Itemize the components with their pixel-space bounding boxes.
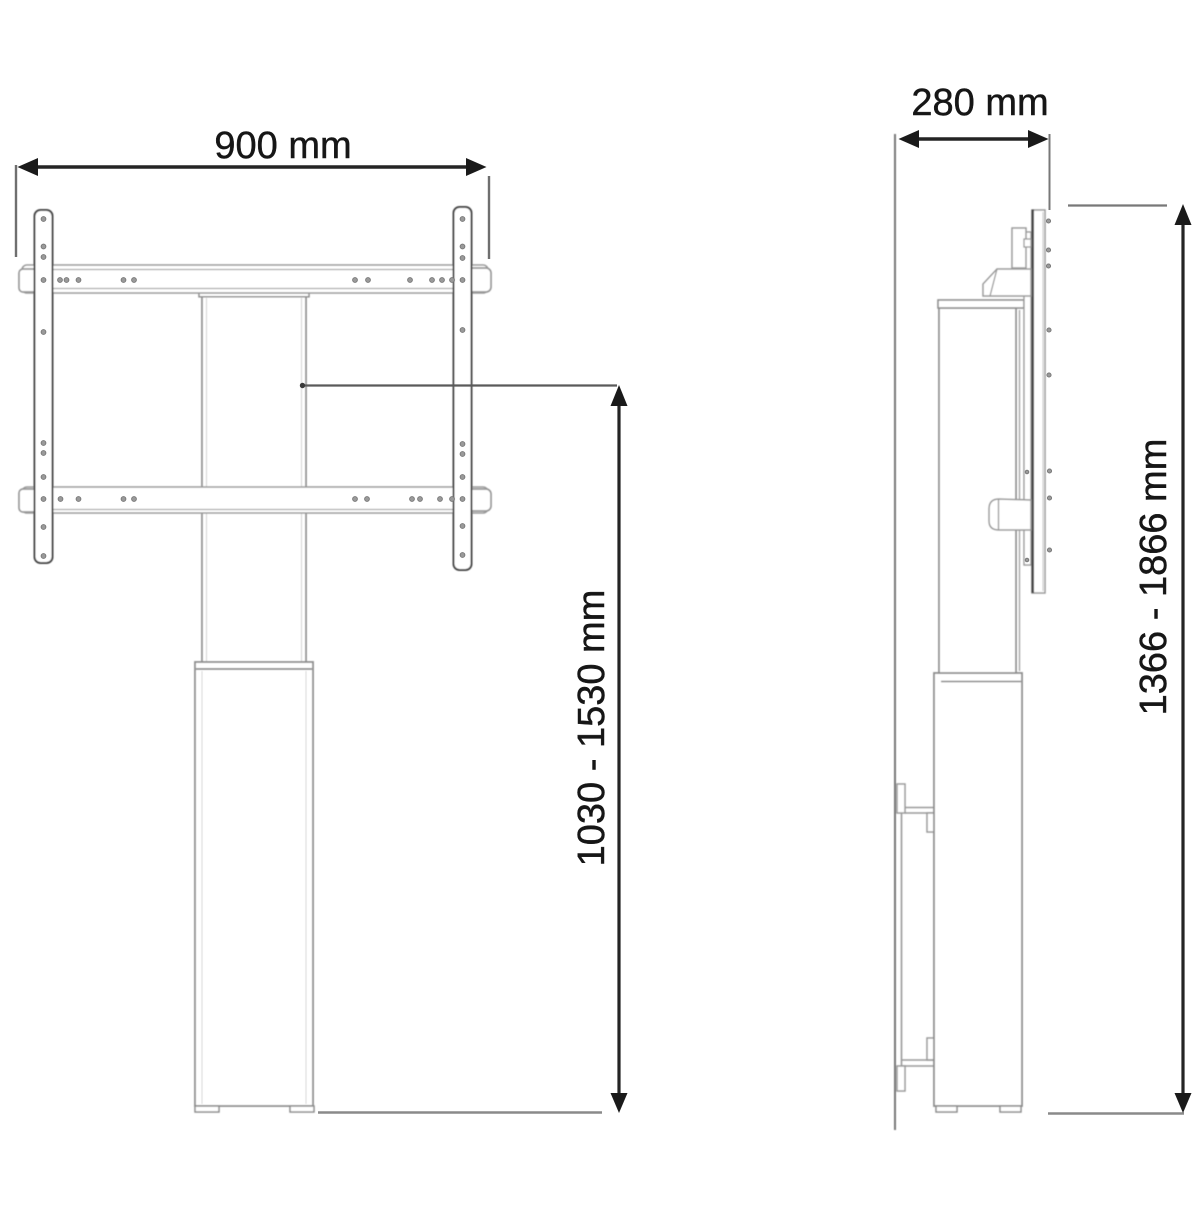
svg-text:280 mm: 280 mm xyxy=(911,82,1048,124)
svg-text:900 mm: 900 mm xyxy=(214,125,351,167)
svg-text:1366 - 1866 mm: 1366 - 1866 mm xyxy=(1133,439,1175,716)
svg-text:1030 - 1530 mm: 1030 - 1530 mm xyxy=(571,590,613,867)
